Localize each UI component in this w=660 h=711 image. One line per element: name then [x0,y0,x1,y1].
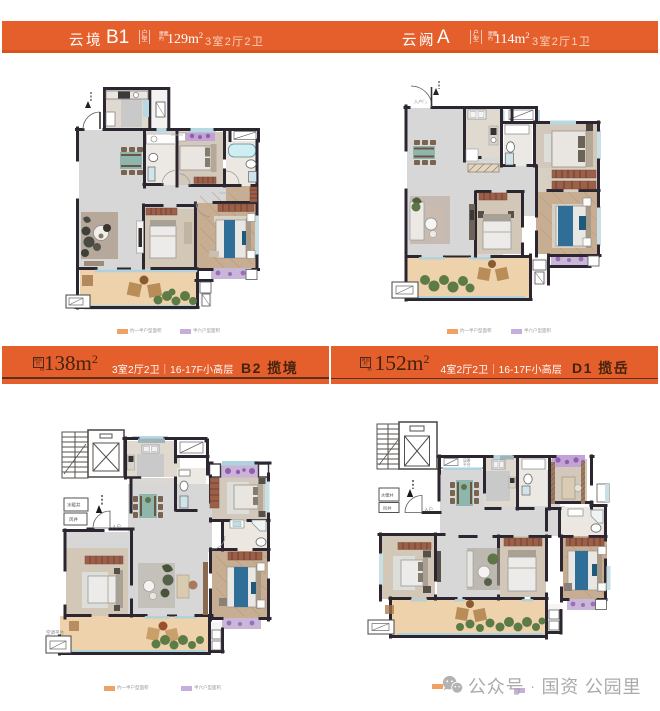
svg-text:平台: 平台 [463,462,471,467]
svg-text:风井: 风井 [69,516,78,523]
svg-text:风井: 风井 [383,505,391,512]
svg-text:水暖井: 水暖井 [381,492,394,499]
svg-text:空调平台: 空调平台 [46,629,64,636]
svg-text:入户: 入户 [112,523,121,530]
svg-text:水暖井: 水暖井 [67,502,81,509]
svg-text:设备: 设备 [463,458,471,463]
svg-text:入户: 入户 [424,506,433,513]
